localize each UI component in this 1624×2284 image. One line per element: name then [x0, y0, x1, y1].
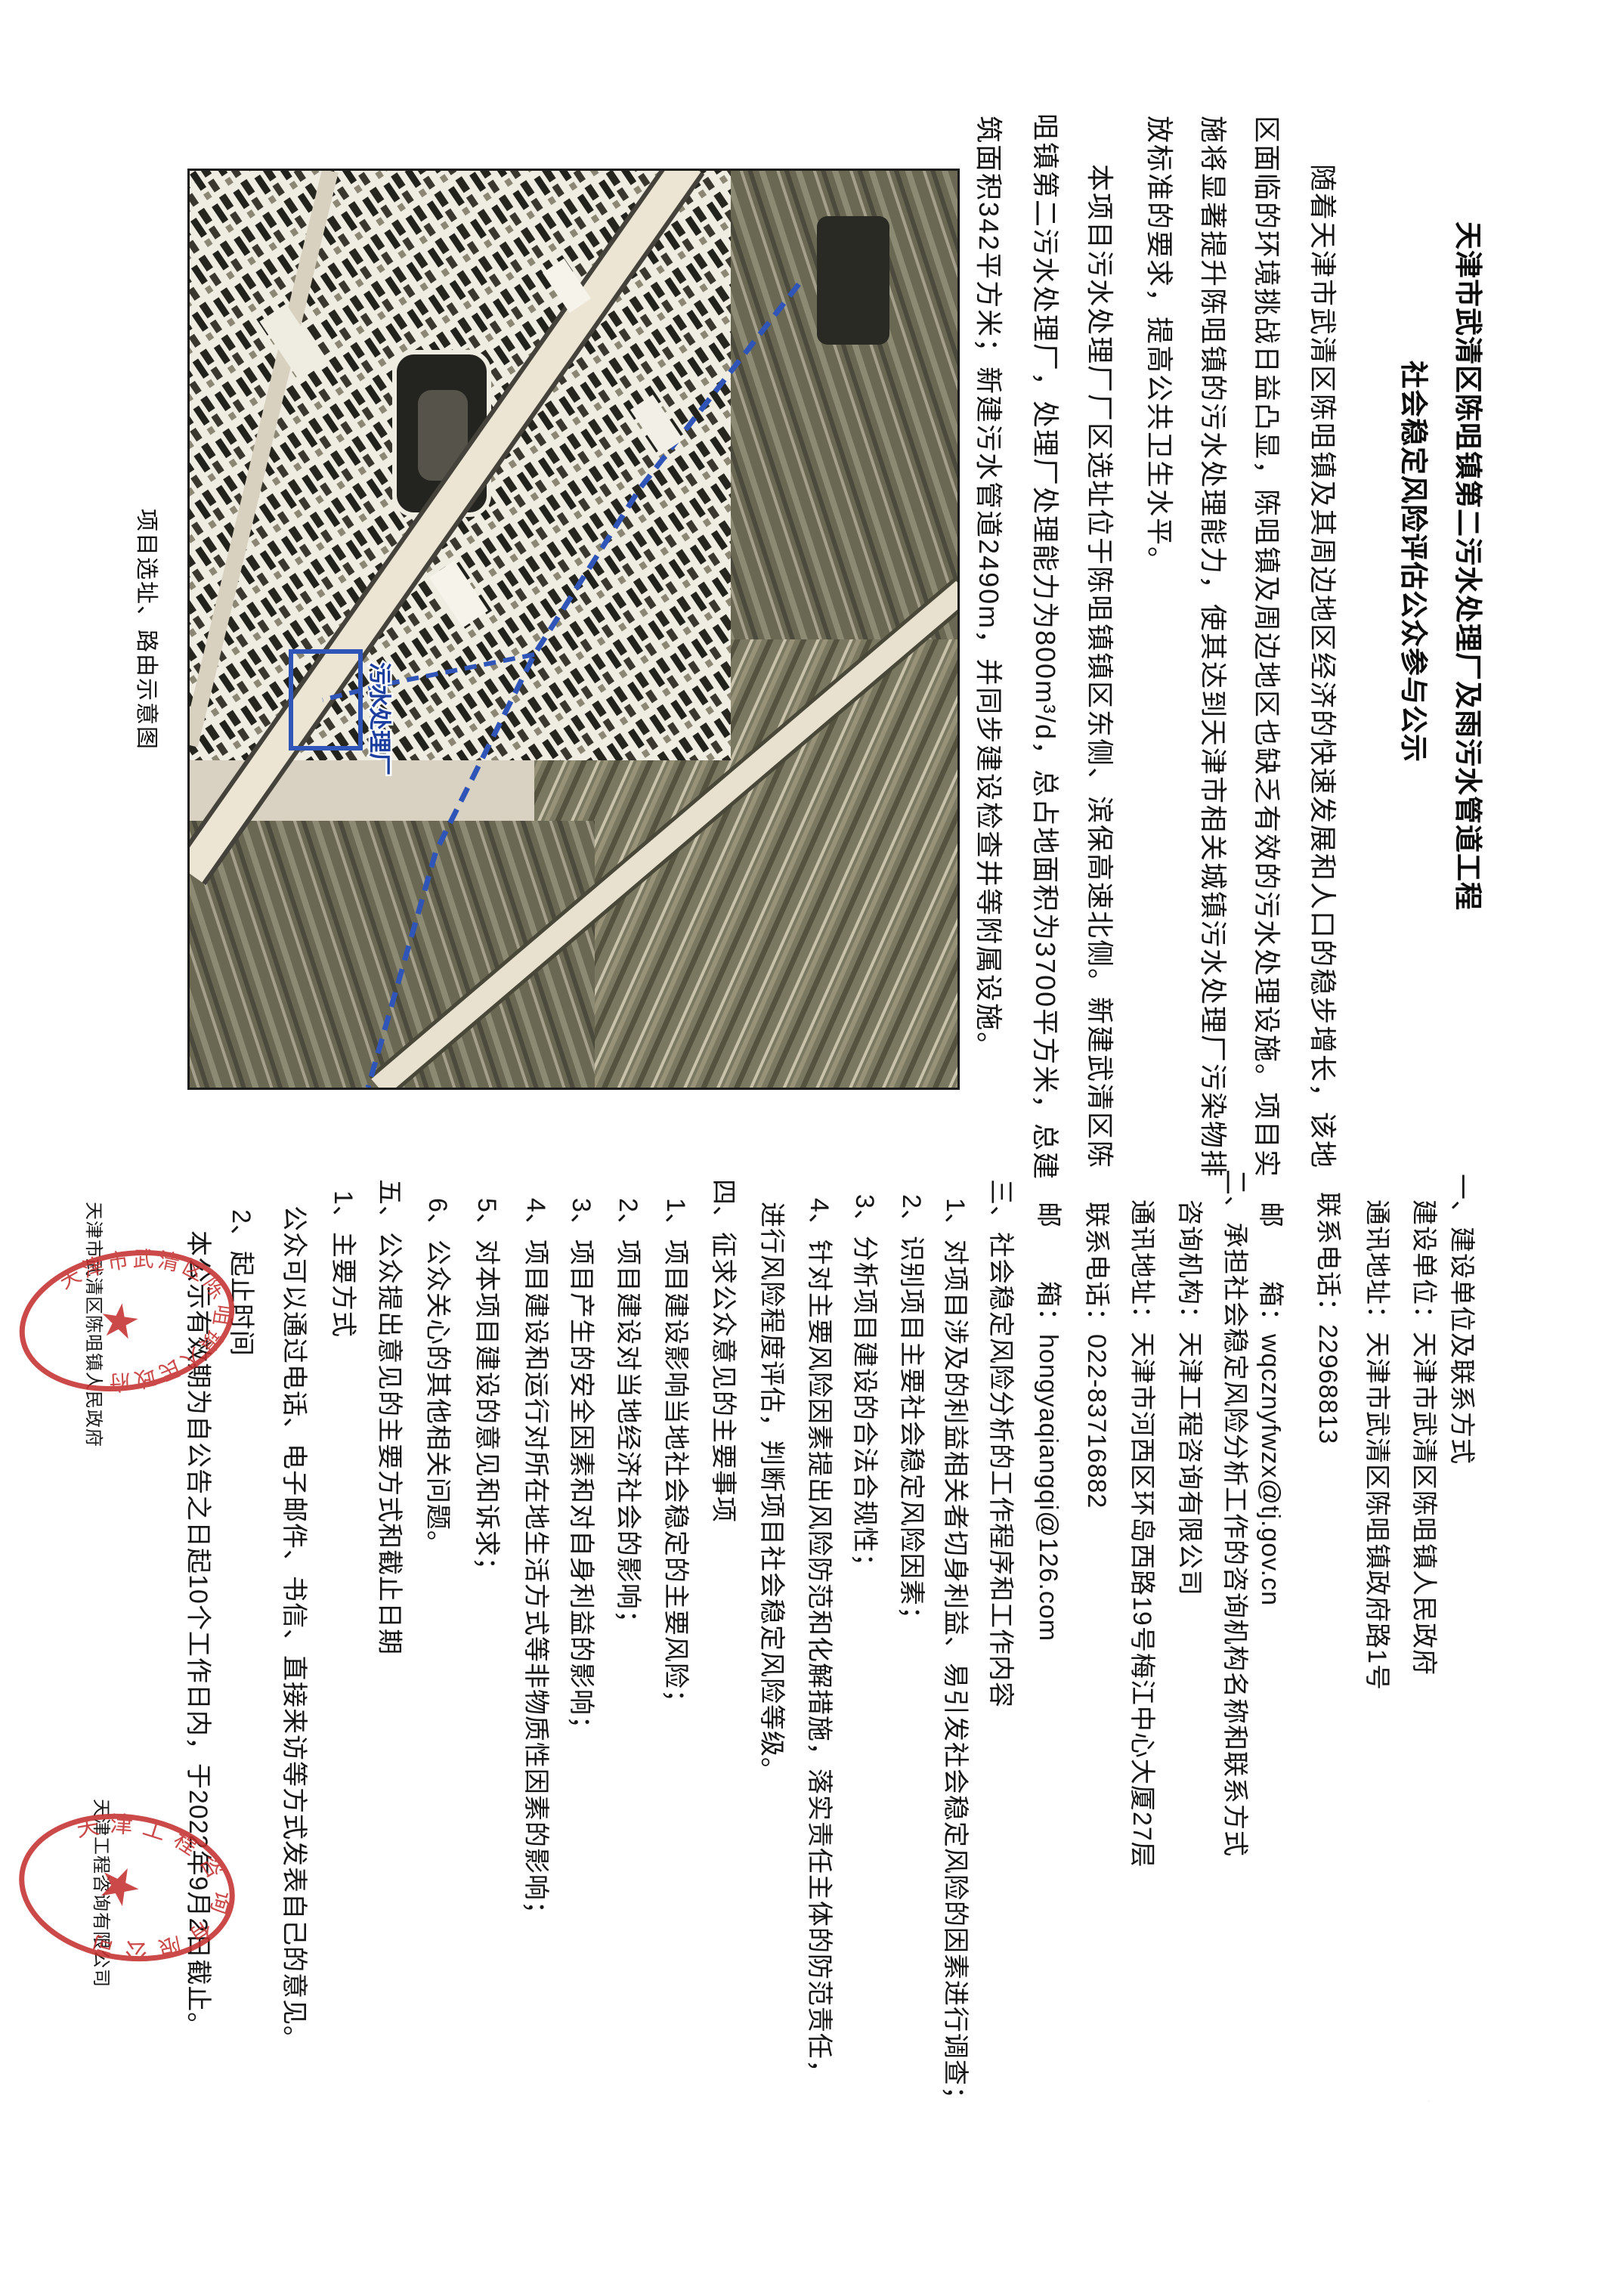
satellite-map-graphic: 污水处理厂: [190, 171, 957, 1088]
seal-arc-text: 天津工程咨询有限公司: [56, 1805, 246, 1976]
consultant-line: 咨询机构：天津工程咨询有限公司: [1174, 1199, 1211, 1596]
phone-line: 联系电话：022-83716882: [1081, 1202, 1118, 1509]
list-item: 2、识别项目主要社会稳定风险因素；: [896, 1194, 933, 1633]
section-2-heading: 二、承担社会稳定风险分析工作的咨询机构名称和联系方式: [1219, 1169, 1256, 1857]
list-item: 3、项目产生的安全因素和对自身利益的影响；: [565, 1198, 602, 1742]
construction-unit-line: 建设单位：天津市武清区陈咀镇人民政府: [1408, 1199, 1445, 1676]
list-item: 4、针对主要风险因素提出风险防范和化解措施，落实责任主体的防范责任，: [803, 1198, 840, 2086]
intro-paragraph-line: 放标准的要求，提高公共卫生水平。: [1142, 116, 1181, 575]
list-item: 2、项目建设对当地经济社会的影响；: [612, 1198, 649, 1636]
intro-paragraph-line: 施将显著提升陈咀镇的污水处理能力，使其达到天津市相关城镇污水处理厂污染物排: [1196, 116, 1235, 1178]
list-item: 1、项目建设影响当地社会稳定的主要风险；: [660, 1198, 697, 1716]
intro-paragraph-line: 随着天津市武清区陈咀镇及其周边地区经济的快速发展和人口的稳步增长，该地: [1305, 164, 1344, 1169]
plant-label: 污水处理厂: [367, 662, 391, 775]
section-1-heading: 一、建设单位及联系方式: [1446, 1174, 1483, 1465]
list-item: 5、对本项目建设的意见和诉求；: [471, 1198, 508, 1583]
email-line: 邮 箱：wqcznyfwzx@tj.gov.cn: [1254, 1202, 1291, 1606]
project-paragraph-line: 咀镇第二污水处理厂，处理厂处理能力为800m³/d，总占地面积为3700平方米，…: [1028, 113, 1067, 1181]
company-seal: 天津工程咨询有限公司 ★: [2, 1797, 249, 1978]
address-line: 通讯地址：天津市河西区环岛西路19号梅江中心大厦27层: [1126, 1199, 1163, 1868]
rotated-document-sheet: 天津市武清区陈咀镇第二污水处理厂及雨污水管道工程 社会稳定风险评估公众参与公示 …: [0, 0, 1624, 2284]
section-5-heading: 五、公众提出意见的主要方式和截止日期: [373, 1179, 410, 1655]
list-item: 1、对项目涉及的利益相关者切身利益、易引发社会稳定风险的因素进行调查；: [939, 1198, 976, 2112]
map-caption: 项目选址、路由示意图: [132, 509, 165, 751]
seal-star-icon: ★: [89, 1861, 151, 1913]
intro-paragraph-line: 区面临的环境挑战日益凸显，陈咀镇及周边地区也缺乏有效的污水处理设施。项目实: [1249, 116, 1288, 1178]
seal-star-icon: ★: [91, 1297, 150, 1348]
phone-line: 联系电话：22968813: [1312, 1192, 1349, 1444]
notice-title-line-2: 社会稳定风险评估公众参与公示: [1396, 361, 1437, 763]
project-paragraph-line: 本项目污水处理厂厂区选址位于陈咀镇镇区东侧、滨保高速北侧。新建武清区陈: [1082, 164, 1121, 1169]
email-line: 邮 箱：hongyaqiangqi@126.com: [1032, 1202, 1069, 1642]
address-line: 通讯地址：天津市武清区陈咀镇政府路1号: [1361, 1199, 1398, 1691]
list-item: 4、项目建设和运行对所在地生活方式等非物质性因素的影响；: [520, 1198, 557, 1927]
list-item-continuation: 进行风险程度评估，判断项目社会稳定风险等级。: [756, 1202, 793, 1784]
pond: [817, 216, 889, 345]
list-item: 1、主要方式: [327, 1190, 364, 1338]
site-map: 污水处理厂: [187, 169, 960, 1090]
notice-title-line-1: 天津市武清区陈咀镇第二污水处理厂及雨污水管道工程: [1450, 221, 1491, 911]
list-item: 公众可以通过电话、电子邮件、书信、直接来访等方式发表自己的意见。: [278, 1205, 315, 2052]
list-item: 3、分析项目建设的合法合规性；: [849, 1194, 886, 1580]
section-3-heading: 三、社会稳定风险分析的工作程序和工作内容: [985, 1179, 1022, 1708]
seal-arc-text: 天津市武清区陈咀镇人民政府: [53, 1231, 247, 1403]
list-item: 6、公众关心的其他相关问题。: [422, 1198, 459, 1557]
project-paragraph-line: 筑面积342平方米；新建污水管道2490m，并同步建设检查井等附属设施。: [971, 116, 1010, 1060]
section-4-heading: 四、征求公众意见的主要事项: [707, 1179, 744, 1523]
